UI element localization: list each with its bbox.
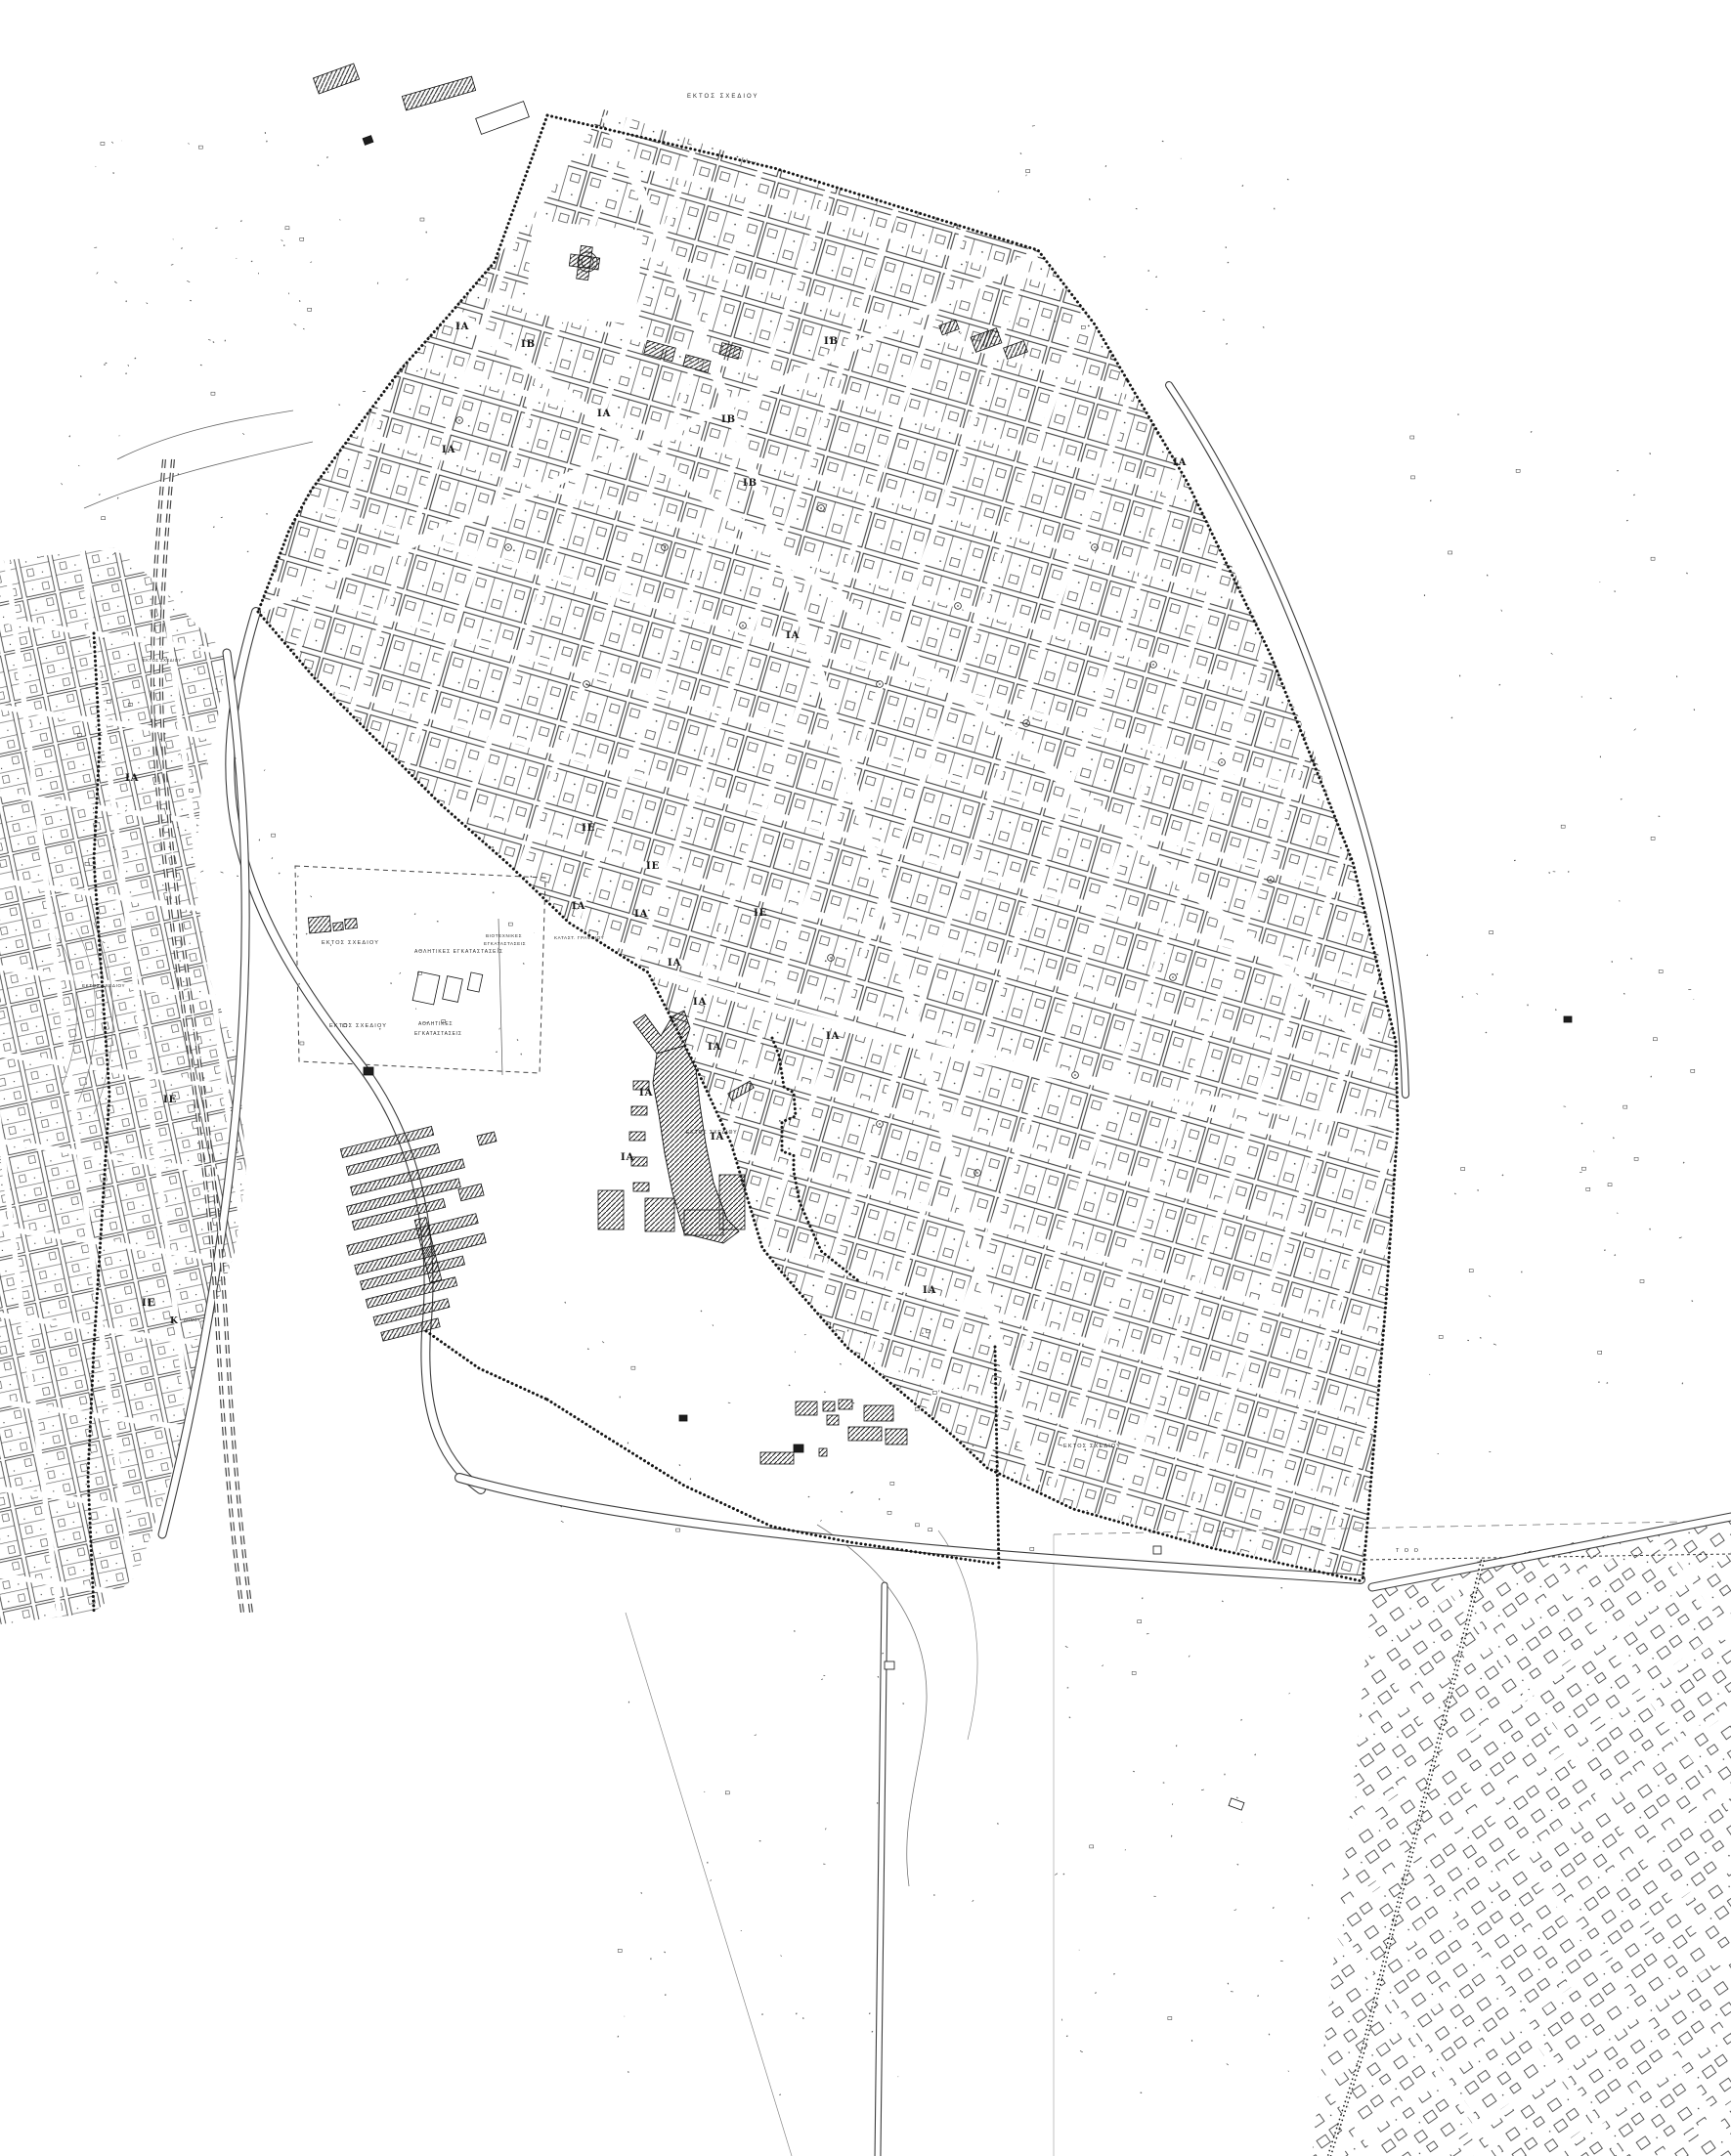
place-label: ΒΙΟΤΕΧΝΙΚΕΣ (486, 933, 522, 938)
speck (707, 1862, 708, 1864)
speck (701, 1310, 703, 1312)
speck (796, 2012, 798, 2014)
tree-circle-dot (1094, 546, 1096, 548)
thin-line (295, 866, 545, 1073)
speck-line (1080, 2050, 1083, 2051)
place-label: ΕΓΚΑΤΑΣΤΑΣΕΙΣ (414, 1031, 462, 1037)
speck-line (400, 972, 401, 973)
speck (879, 1498, 880, 1500)
speck (1621, 798, 1623, 800)
speck (761, 2013, 763, 2014)
speck (933, 1894, 934, 1896)
speck-line (221, 872, 224, 873)
speck (1241, 185, 1243, 187)
place-label: ΑΘΛΗΤΙΚΕΣ ΕΓΚΑΤΑΣΤΑΣΕΙΣ (414, 949, 503, 955)
speck (628, 1702, 629, 1703)
zone-label: ΙΕ (582, 823, 595, 834)
tree-circle-dot (976, 1172, 978, 1174)
speck (1426, 954, 1428, 956)
speck-rect (198, 146, 202, 149)
speck-rect (929, 1529, 932, 1531)
zone-label: ΙΑ (708, 1042, 721, 1053)
speck (112, 172, 114, 173)
speck-line (561, 1521, 564, 1523)
speck-rect (1469, 1270, 1473, 1272)
speck-rect (1449, 551, 1452, 554)
speck (1140, 2092, 1142, 2093)
speck-rect (1651, 837, 1655, 840)
speck (1430, 499, 1432, 501)
speck (1598, 1381, 1599, 1383)
speck (306, 933, 308, 935)
speck (212, 341, 214, 343)
zone-label: ΙΑ (442, 445, 455, 455)
building (1229, 1798, 1244, 1810)
zone-label: ΙΑ (621, 1152, 634, 1163)
speck (259, 840, 260, 841)
speck (1089, 198, 1091, 200)
building (885, 1661, 894, 1669)
speck (1613, 1137, 1615, 1139)
speck-line (294, 323, 297, 325)
zone-label: ΙΑ (572, 901, 585, 912)
speck (80, 375, 82, 377)
zone-label: ΙΕ (754, 908, 767, 919)
building (477, 1132, 497, 1145)
speck (1136, 208, 1138, 210)
speck-line (755, 1735, 757, 1736)
speck (1659, 816, 1661, 818)
speck (523, 963, 525, 965)
tree-circle-dot (585, 683, 587, 685)
k-mark-label: Κ (170, 1316, 179, 1326)
building (827, 1415, 839, 1425)
speck-line (187, 280, 190, 281)
building (467, 972, 482, 992)
speck-rect (1608, 1184, 1612, 1186)
place-label: Τ Ο Ο (1396, 1548, 1420, 1554)
speck-line (499, 1028, 500, 1030)
speck-rect (1090, 1845, 1094, 1848)
speck-line (1172, 1803, 1173, 1805)
speck-rect (1659, 970, 1663, 973)
speck (1617, 470, 1619, 471)
place-label: ΔΗΜΟΥ (184, 1317, 200, 1322)
tree-circle-dot (1074, 1074, 1076, 1076)
speck (225, 340, 226, 342)
zone-label: ΙΒ (824, 336, 839, 347)
speck (1068, 1716, 1070, 1718)
zone-label: ΙΒ (521, 339, 536, 350)
speck (1649, 453, 1651, 454)
speck (1133, 1771, 1135, 1772)
speck (99, 494, 101, 496)
speck-rect (420, 218, 424, 221)
zone-label: ΙΑ (597, 409, 611, 419)
speck-rect (1030, 1547, 1034, 1550)
zone-label: ΙΑ (693, 997, 707, 1008)
speck-line (128, 365, 129, 367)
speck (318, 164, 320, 166)
speck-rect (1461, 1168, 1465, 1171)
speck (878, 1676, 880, 1678)
speck (1521, 1272, 1522, 1273)
speck (1459, 675, 1460, 677)
speck (1224, 1774, 1225, 1776)
speck (1568, 871, 1569, 873)
speck-line (1201, 1789, 1204, 1790)
speck (1148, 270, 1149, 272)
speck-line (114, 281, 116, 283)
speck (1191, 2040, 1192, 2042)
speck (1163, 1782, 1165, 1783)
speck (1227, 262, 1229, 264)
speck (1531, 431, 1533, 433)
thin-line (817, 1525, 927, 1886)
speck (1682, 1383, 1683, 1385)
speck-rect (101, 142, 105, 145)
speck (620, 1397, 621, 1399)
speck-rect (300, 237, 304, 240)
speck-line (1065, 1646, 1068, 1647)
speck (1273, 1907, 1275, 1909)
place-label: ΕΚΤΟΣ ΣΧΕΔΙΟΥ (1063, 1444, 1121, 1449)
speck (299, 300, 301, 302)
speck (1226, 343, 1228, 345)
speck-rect (1598, 1351, 1602, 1354)
building (679, 1415, 687, 1421)
speck-line (1288, 2071, 1289, 2072)
speck (1424, 594, 1425, 596)
place-label: ΑΘΛΗΤΙΚΕΣ (418, 1021, 453, 1027)
speck (665, 1994, 666, 1996)
building (864, 1405, 893, 1421)
tree-circle-dot (664, 546, 666, 548)
place-label: ΕΚΤΟΣ ΣΧΕΔΙΟΥ (82, 983, 125, 988)
speck (1457, 413, 1459, 414)
speck (178, 473, 179, 475)
speck (114, 673, 115, 675)
speck-rect (1138, 1620, 1142, 1623)
speck-line (264, 770, 265, 771)
speck (1581, 1123, 1583, 1125)
speck-rect (1640, 1280, 1644, 1283)
speck-rect (1132, 1671, 1136, 1674)
speck (1514, 860, 1516, 861)
speck-line (310, 262, 312, 263)
speck-rect (1490, 931, 1493, 934)
speck-rect (300, 1042, 304, 1045)
zone-label: ΙΕ (646, 861, 660, 872)
speck (627, 1443, 628, 1445)
speck (104, 364, 105, 366)
speck (237, 876, 238, 877)
speck (587, 1348, 589, 1350)
speck-rect (285, 227, 289, 230)
speck (520, 1054, 522, 1056)
speck (1312, 1884, 1314, 1886)
building (1564, 1016, 1572, 1022)
speck (265, 132, 266, 134)
speck-rect (102, 517, 106, 520)
speck (640, 1892, 642, 1894)
tree-circle-dot (507, 546, 509, 548)
building (760, 1452, 794, 1464)
speck (1606, 1382, 1608, 1384)
speck (1683, 1162, 1685, 1164)
speck-rect (1439, 1335, 1443, 1338)
speck (1066, 2035, 1068, 2037)
speck (251, 260, 253, 262)
speck (678, 1464, 680, 1466)
speck (1257, 1995, 1259, 1997)
zone-label: ΙΑ (711, 1132, 724, 1143)
building (839, 1400, 852, 1409)
speck (1462, 996, 1463, 998)
speck (564, 1302, 566, 1304)
speck-line (1055, 1874, 1058, 1876)
speck (1548, 872, 1550, 874)
speck-line (820, 1521, 822, 1522)
speck (1502, 1174, 1504, 1176)
speck-line (1189, 1656, 1190, 1658)
speck (240, 220, 242, 222)
speck-line (189, 143, 190, 144)
speck-line (377, 282, 378, 284)
speck-line (62, 483, 63, 485)
speck (1498, 684, 1500, 686)
speck-line (1227, 2064, 1229, 2066)
building (631, 1106, 647, 1115)
speck (134, 358, 136, 360)
speck (200, 365, 202, 367)
speck (1626, 520, 1628, 521)
tree-circle-dot (879, 683, 881, 685)
speck (1676, 675, 1677, 677)
speck (1240, 1719, 1242, 1721)
speck-rect (618, 1949, 622, 1952)
speck (802, 2017, 804, 2019)
speck (216, 688, 218, 689)
speck-rect (1653, 1038, 1657, 1041)
speck (1142, 1597, 1144, 1599)
tree-circle-dot (1172, 976, 1174, 978)
speck-line (281, 240, 283, 241)
speck (266, 141, 268, 143)
speck (627, 2071, 629, 2073)
speck (1686, 573, 1688, 575)
speck-rect (1623, 1105, 1627, 1108)
speck-line (804, 1334, 806, 1335)
boundary-dotted (547, 1400, 995, 1564)
building (819, 1448, 827, 1456)
speck (1269, 2034, 1271, 2036)
speck-line (1429, 1374, 1430, 1375)
speck (279, 873, 281, 875)
speck (1614, 1254, 1616, 1256)
speck (1492, 973, 1493, 974)
speck (1527, 1005, 1528, 1007)
speck-rect (887, 1511, 891, 1514)
speck (664, 1951, 666, 1953)
speck-line (1289, 1693, 1290, 1694)
speck-line (826, 1828, 827, 1830)
speck-rect (211, 392, 215, 395)
speck-line (171, 265, 173, 266)
speck (794, 1630, 795, 1632)
speck-rect (725, 1791, 729, 1794)
building (308, 916, 330, 933)
speck (841, 1511, 843, 1513)
speck-line (221, 517, 223, 518)
speck (852, 1402, 854, 1403)
speck-rect (1410, 436, 1414, 439)
tree-circle-dot (957, 605, 959, 607)
building (333, 923, 344, 931)
boundary-dotted (426, 1331, 547, 1400)
speck-line (821, 1679, 823, 1680)
speck-line (1501, 610, 1502, 612)
speck (902, 1703, 904, 1703)
zone-label: ΙΑ (125, 773, 139, 784)
speck (1263, 326, 1265, 328)
building (629, 1132, 645, 1141)
building (794, 1445, 803, 1452)
speck (1649, 1229, 1651, 1230)
speck (190, 300, 192, 301)
speck-rect (1651, 557, 1655, 560)
building (823, 1401, 835, 1411)
speck (181, 247, 183, 249)
cadastral-map-scan: ΕΚΤΟΣ ΣΧΕΔΙΟΥΕΚΤΟΣ ΣΧΕΔΙΟΥΑΘΛΗΤΙΚΕΣ ΕΓΚΑ… (0, 0, 1731, 2156)
speck (1146, 309, 1147, 310)
speck-rect (1586, 1187, 1590, 1190)
building (364, 1067, 373, 1075)
speck (199, 648, 200, 650)
speck (1650, 1076, 1652, 1078)
speck (437, 921, 439, 922)
tree-circle-dot (458, 419, 460, 421)
speck (117, 497, 119, 499)
speck (1600, 756, 1601, 758)
speck-rect (1026, 170, 1030, 173)
speck (283, 244, 284, 246)
speck-line (1102, 1665, 1104, 1666)
speck (1226, 246, 1227, 248)
speck (1155, 276, 1157, 278)
place-label: ΕΚΤΟΣ ΣΧΕΔΙΟΥ (687, 94, 758, 100)
speck (517, 1039, 519, 1041)
speck-line (1679, 1237, 1682, 1238)
speck (1067, 1687, 1069, 1689)
tree-circle-dot (1221, 761, 1223, 763)
speck (338, 404, 340, 406)
speck (213, 526, 215, 528)
speck (1105, 165, 1107, 167)
speck (1630, 958, 1632, 960)
speck (789, 1385, 791, 1387)
speck (1062, 1874, 1064, 1876)
speck (1019, 152, 1021, 154)
speck (690, 1478, 691, 1480)
building (412, 971, 440, 1005)
building (363, 136, 373, 146)
speck (1604, 1249, 1606, 1251)
speck (1176, 1745, 1178, 1746)
thin-line (938, 1531, 977, 1740)
speck (824, 1392, 826, 1393)
zone-label: ΙΑ (668, 958, 681, 969)
speck (181, 591, 183, 593)
zone-label: ΙΑ (455, 322, 469, 332)
speck (1633, 494, 1635, 496)
speck-line (781, 1956, 782, 1957)
speck (1113, 1973, 1115, 1975)
speck-rect (508, 923, 512, 926)
place-label: ΕΚΤΟΣ ΣΧΕΔΙΟΥ (322, 940, 379, 946)
speck-line (407, 279, 409, 280)
speck-line (1026, 175, 1027, 177)
zone-label: ΙΑ (639, 1088, 653, 1099)
speck (297, 876, 299, 878)
speck (1280, 1587, 1282, 1588)
speck (1236, 1796, 1238, 1798)
building (598, 1190, 624, 1229)
speck-line (1551, 653, 1553, 654)
speck-rect (1168, 2017, 1172, 2020)
place-label: ΕΓΚΑΤΑΣΤΑΣΕΙΣ (484, 941, 526, 946)
speck-line (998, 191, 999, 193)
speck (496, 1052, 498, 1053)
zone-label: ΙΑ (923, 1285, 936, 1296)
speck-line (1280, 1961, 1283, 1962)
speck-line (200, 871, 203, 873)
building (848, 1427, 882, 1441)
speck (414, 913, 416, 915)
speck (877, 1802, 878, 1804)
building (458, 1184, 484, 1200)
speck (1477, 1189, 1478, 1191)
speck (125, 372, 127, 373)
zone-label: ΙΕ (163, 1095, 177, 1105)
speck (68, 435, 70, 437)
speck (1223, 319, 1225, 321)
speck (869, 2012, 871, 2014)
zone-label: ΙΒ (743, 478, 757, 489)
speck-line (97, 272, 98, 274)
speck (1487, 575, 1489, 577)
speck (1485, 1032, 1487, 1034)
place-label: ΚΑΤΑΣΤ. ΓΡΑΦΕΙΟΥ (554, 935, 604, 940)
speck (1162, 141, 1164, 142)
tree-circle-dot (820, 507, 822, 509)
speck (1480, 1337, 1482, 1339)
speck (1467, 1340, 1469, 1341)
speck (808, 1496, 810, 1498)
map-svg: ΕΚΤΟΣ ΣΧΕΔΙΟΥΕΚΤΟΣ ΣΧΕΔΙΟΥΑΘΛΗΤΙΚΕΣ ΕΓΚΑ… (0, 0, 1731, 2156)
speck-line (713, 1324, 714, 1326)
speck-rect (631, 1366, 635, 1369)
speck-line (1490, 1295, 1491, 1297)
speck-line (173, 239, 174, 240)
building (645, 1198, 674, 1231)
building (633, 1183, 649, 1191)
speck-line (1234, 1910, 1237, 1911)
speck-line (1477, 993, 1478, 994)
speck-rect (890, 1482, 894, 1485)
speck-line (258, 273, 259, 274)
speck (1450, 716, 1452, 718)
